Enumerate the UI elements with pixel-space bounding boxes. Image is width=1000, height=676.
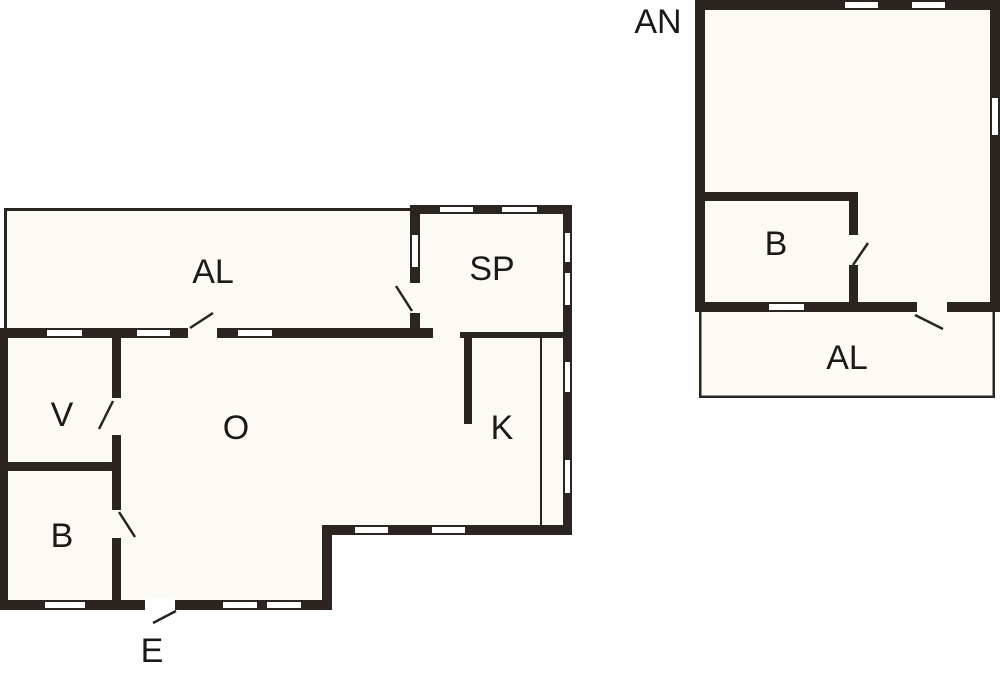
step-wall	[322, 525, 332, 610]
door-opening-annex-terrace	[917, 301, 947, 313]
annex-floor	[695, 0, 1000, 312]
annex-terrace-left-wall	[699, 312, 702, 398]
window	[565, 233, 570, 262]
room-label-b-main: B	[51, 517, 74, 555]
entrance-label: E	[141, 632, 164, 670]
kitchen-counter-line	[540, 338, 542, 525]
window	[565, 460, 570, 493]
annex-b-top-wall	[705, 192, 858, 201]
terrace-top-wall	[4, 208, 412, 211]
window	[45, 602, 85, 608]
window	[137, 330, 170, 336]
window	[432, 527, 465, 533]
window	[355, 527, 388, 533]
window	[769, 304, 804, 310]
window	[565, 362, 570, 392]
v-b-divider-wall	[0, 462, 121, 471]
room-label-o: O	[223, 409, 249, 447]
room-label-v: V	[51, 396, 74, 434]
door-opening-terrace	[188, 327, 217, 339]
window	[47, 330, 82, 336]
window	[502, 207, 537, 212]
annex-title-label: AN	[634, 3, 681, 41]
window	[440, 207, 473, 212]
floor-plan: AL SP V O K B E AN B AL	[0, 0, 1000, 676]
sp-top-wall	[410, 205, 572, 214]
room-label-al-main: AL	[192, 253, 234, 291]
window	[912, 2, 945, 8]
door-opening-entrance	[145, 599, 175, 611]
window	[267, 602, 301, 608]
floor-plan-canvas: AL SP V O K B E AN B AL	[0, 0, 1000, 676]
annex-left-wall	[695, 0, 705, 312]
room-label-k: K	[491, 409, 514, 447]
annex-bottom-wall	[695, 302, 1000, 312]
annex-terrace-right-wall	[993, 312, 996, 398]
annex-terrace-bottom-wall	[699, 396, 995, 399]
kitchen-divider-wall	[464, 338, 472, 424]
kitchen-top-wall	[460, 332, 567, 338]
window	[223, 602, 257, 608]
window	[845, 2, 878, 8]
window	[412, 235, 418, 267]
room-label-sp: SP	[469, 250, 514, 288]
door-swing-entrance	[153, 611, 176, 623]
room-label-b-annex: B	[765, 225, 788, 263]
window	[992, 98, 998, 135]
terrace-left-wall	[4, 208, 7, 330]
window	[238, 330, 272, 336]
room-label-al-annex: AL	[826, 339, 868, 377]
window	[565, 273, 570, 305]
annex-right-wall	[990, 0, 1000, 312]
interior-vertical-wall	[112, 338, 121, 610]
sp-left-wall	[410, 205, 420, 338]
main-floor-upper	[0, 328, 572, 535]
